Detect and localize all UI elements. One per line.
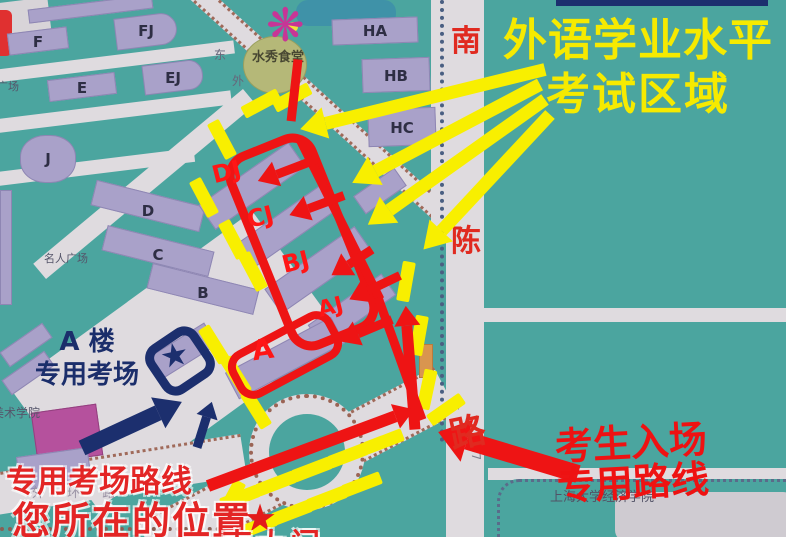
flower-icon: ❋ xyxy=(266,0,305,52)
label-building-HC: HC xyxy=(368,119,436,137)
gate-label: 南大门 xyxy=(222,520,324,537)
a-building-label: A 楼 专用考场 xyxy=(28,326,146,391)
panel-gap-1 xyxy=(484,308,786,322)
label-building-F: F xyxy=(8,33,68,51)
entrance-route-label: 考生入场 专用路线 xyxy=(498,417,766,510)
label-building-B: B xyxy=(148,284,258,302)
label-building-C: C xyxy=(103,246,213,264)
a-building-label-line1: A 楼 xyxy=(28,326,146,359)
label-building-HB: HB xyxy=(362,67,430,85)
building-left-strip xyxy=(0,190,12,305)
campus-map: ❋ F FJ E EJ J D C B HA HB HC 北广场 名人广场 美术… xyxy=(0,0,786,537)
route-dash xyxy=(396,261,416,303)
exam-area-title-line2: 考试区域 xyxy=(492,58,784,122)
label-road-outer: 外 xyxy=(232,72,244,89)
label-celebrity-square: 名人广场 xyxy=(44,250,88,266)
label-nanchen-1: 南 xyxy=(451,16,481,60)
label-building-HA: HA xyxy=(332,22,418,40)
your-location-label: 您所在的位置 xyxy=(12,490,252,537)
label-building-E: E xyxy=(48,79,116,97)
label-building-J: J xyxy=(20,150,76,168)
label-building-FJ: FJ xyxy=(115,22,177,40)
label-building-D: D xyxy=(92,202,204,220)
label-art-college: 美术学院 xyxy=(0,404,40,421)
label-north-square: 北广场 xyxy=(0,78,19,94)
label-road-east: 东 xyxy=(214,46,226,63)
a-building-label-line2: 专用考场 xyxy=(28,359,146,392)
zone-label-a: A xyxy=(250,332,276,368)
label-building-EJ: EJ xyxy=(143,69,203,87)
